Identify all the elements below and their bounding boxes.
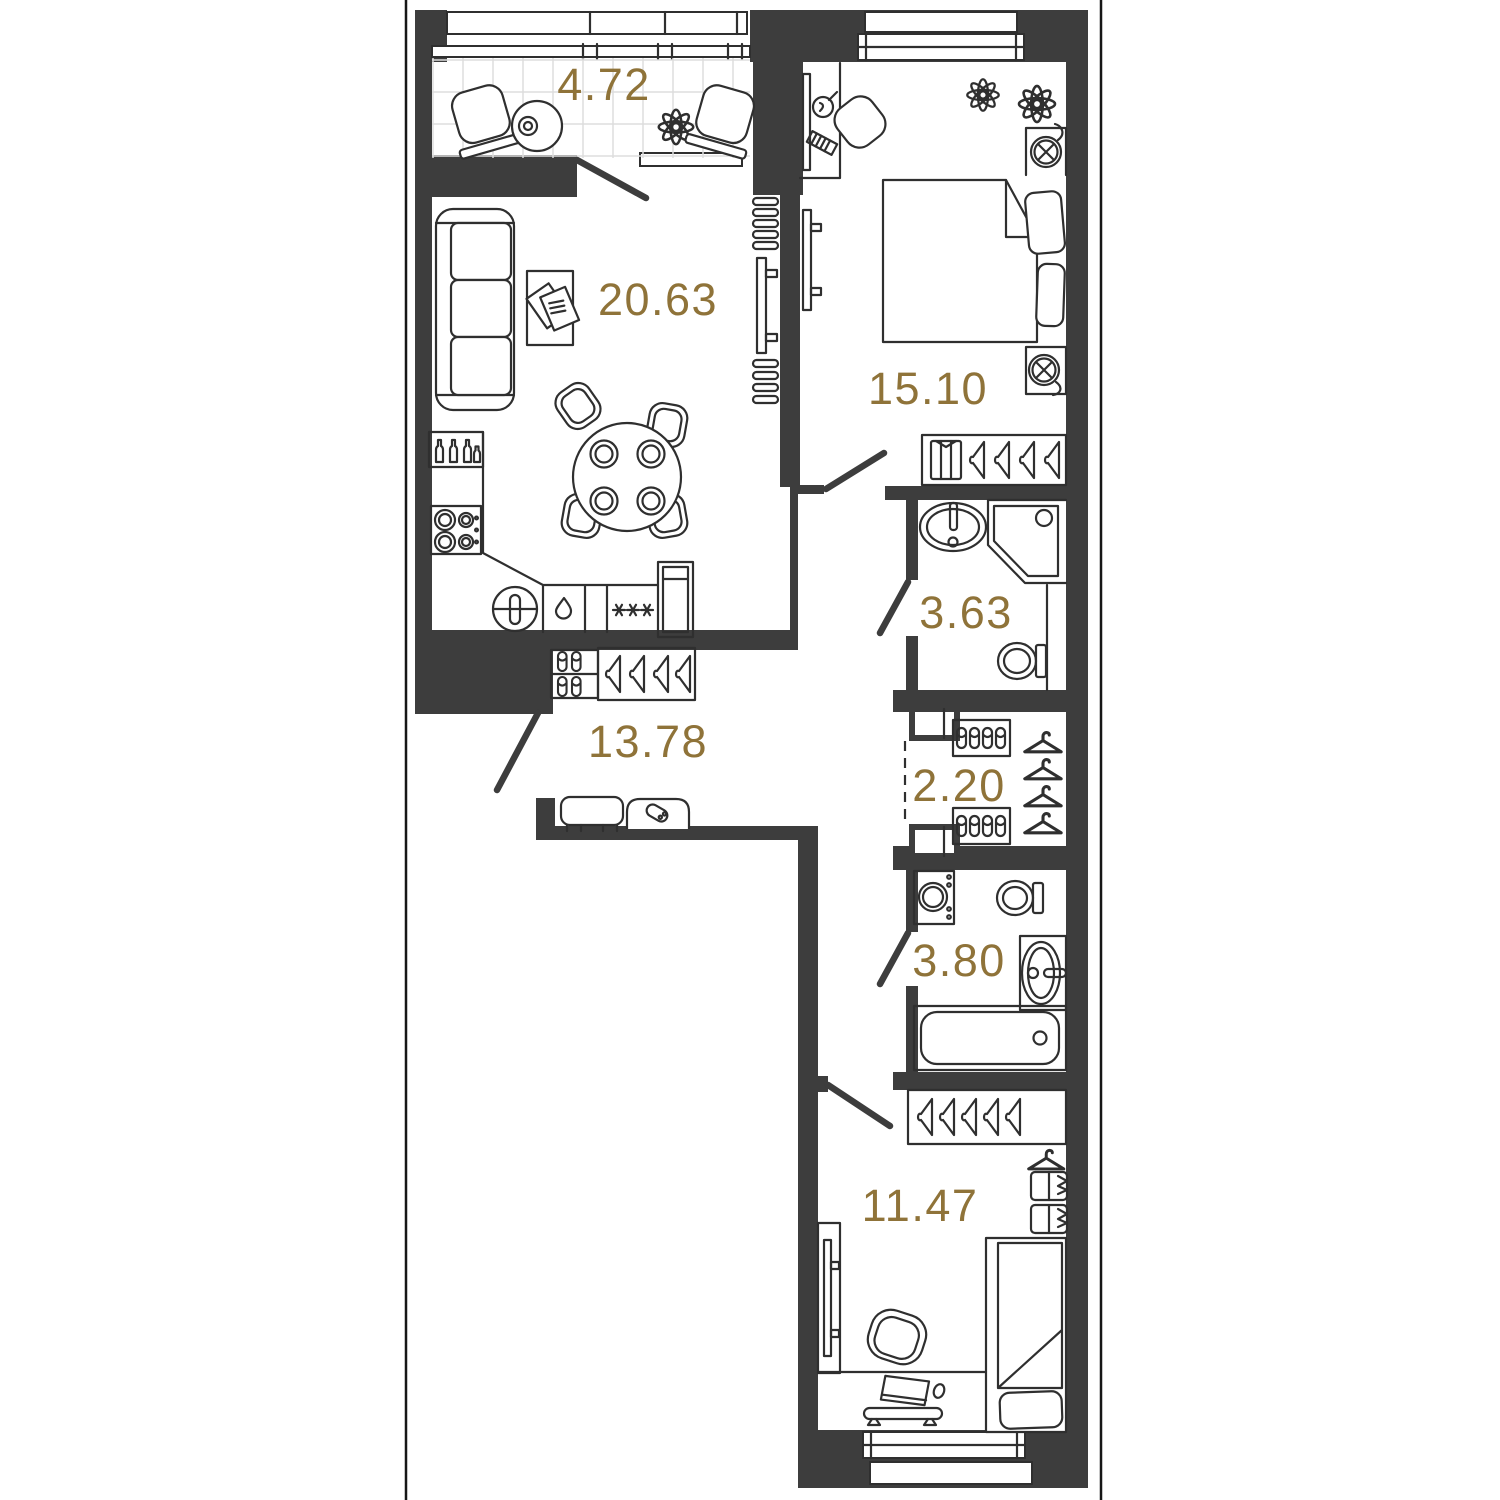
hangers-icon	[1025, 733, 1061, 833]
duct-shaft	[912, 709, 957, 738]
wardrobe-icon	[922, 435, 1066, 485]
area-label-bedroom-2: 11.47	[862, 1180, 979, 1231]
tv-icon	[818, 1223, 840, 1373]
pillow-icon	[999, 1391, 1062, 1429]
double-bed-icon	[883, 180, 1066, 342]
appliance-asterisks-icon	[613, 605, 653, 615]
dishwasher-icon	[556, 598, 571, 619]
plant-icon	[967, 79, 999, 111]
room-bedroom-2: 11.47	[818, 1090, 1067, 1432]
room-bedroom-1: 15.10	[800, 63, 1066, 485]
wardrobe-hangers-icon	[908, 1090, 1066, 1144]
round-side-table-icon	[512, 101, 562, 151]
drawer-shelf-icon	[1031, 1205, 1067, 1233]
entry-door	[497, 713, 538, 790]
washbasin-icon	[920, 503, 986, 551]
bedroom-2-door	[828, 1085, 890, 1126]
plant-icon	[1019, 86, 1055, 122]
pillow-icon	[1036, 264, 1065, 327]
floor-plan-page: 4.72	[0, 0, 1500, 1500]
bedroom-1-door	[826, 453, 884, 489]
corner-shower-icon	[988, 500, 1066, 583]
wall-shelf-icon	[753, 360, 778, 403]
room-bathroom-1: 3.63	[919, 500, 1066, 690]
area-label-hallway: 13.78	[588, 716, 708, 767]
single-bed-icon	[986, 1238, 1066, 1432]
cooktop-icon	[431, 506, 481, 554]
shoe-shelf-icon	[953, 720, 1010, 756]
kitchen-sink-icon	[493, 587, 537, 631]
toilet-icon	[998, 643, 1046, 679]
area-label-bedroom-1: 15.10	[868, 363, 988, 414]
shoe-shelf-icon	[953, 808, 1010, 844]
tv-icon	[757, 258, 777, 353]
closet-hangers-icon	[598, 648, 695, 700]
washing-machine-icon	[914, 871, 954, 924]
nightstand-lamp-icon	[1026, 124, 1066, 175]
mouse-icon	[932, 1383, 946, 1400]
area-label-bathroom-1: 3.63	[919, 587, 1013, 638]
pillow-icon	[1024, 191, 1065, 255]
bench-icon	[561, 797, 623, 831]
pouf-icon	[627, 799, 689, 829]
drawer-shelf-icon	[1031, 1172, 1067, 1200]
wall-shelf-icon	[753, 198, 778, 249]
room-bathroom-2: 3.80	[912, 871, 1066, 1070]
laptop-icon	[881, 1376, 929, 1406]
room-closet: 2.20	[905, 709, 1061, 856]
area-label-closet: 2.20	[912, 760, 1006, 811]
bedroom-1-window	[858, 12, 1024, 60]
duct-shaft	[912, 827, 957, 856]
balcony-door	[577, 160, 646, 198]
room-hallway: 13.78	[551, 648, 708, 831]
bathroom-2-door	[880, 933, 908, 984]
toilet-icon	[997, 881, 1043, 915]
area-label-balcony: 4.72	[557, 59, 651, 110]
tv-icon	[803, 210, 821, 310]
nightstand-lamp-icon	[1026, 347, 1066, 395]
floor-plan: 4.72	[0, 0, 1500, 1500]
desk-icon	[818, 1372, 986, 1425]
room-balcony: 4.72	[432, 58, 762, 159]
area-label-bathroom-2: 3.80	[912, 935, 1006, 986]
dining-table-icon	[573, 423, 681, 531]
washbasin-icon	[1020, 936, 1066, 1010]
keyboard-shelf-icon	[864, 1408, 942, 1425]
area-label-living: 20.63	[598, 274, 718, 325]
hanger-icon	[1029, 1150, 1064, 1169]
sofa-icon	[436, 209, 514, 410]
bedroom-2-window	[863, 1432, 1032, 1484]
bottle-rack-icon	[429, 432, 483, 467]
room-living-kitchen: 20.63	[429, 198, 778, 637]
bathtub-icon	[914, 1006, 1066, 1070]
coffee-table-icon	[526, 271, 585, 345]
armchair-icon	[863, 1305, 932, 1370]
shoe-shelf-icon	[551, 650, 598, 698]
balcony-glazing-window	[432, 12, 750, 59]
fridge-icon	[658, 562, 693, 637]
bathroom-1-door	[880, 582, 908, 633]
dining-set-icon	[550, 378, 689, 540]
